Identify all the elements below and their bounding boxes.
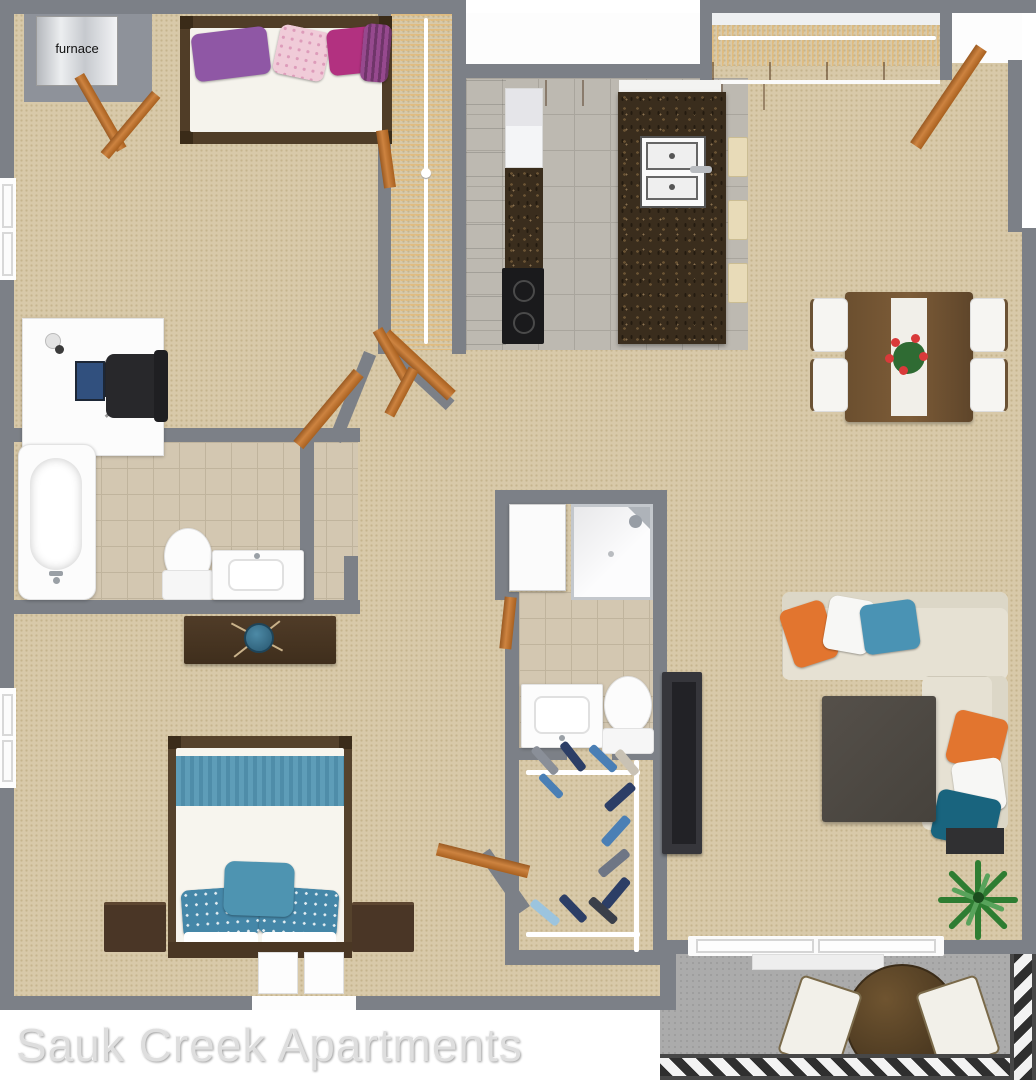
kitchen-upper-cabinet-left (545, 80, 619, 106)
window-bottom-sill (304, 952, 344, 994)
pillow-pink-pattern (271, 23, 332, 83)
bar-stool (728, 263, 748, 303)
sink-drain (669, 153, 675, 159)
shower-drain (608, 551, 614, 557)
watermark: Sauk Creek Apartments (16, 1018, 523, 1072)
patio-sliding-door (688, 936, 944, 956)
linen-closet (509, 504, 566, 591)
bed-master-blanket (176, 756, 344, 806)
window-left-top (0, 178, 16, 280)
window-left-master (0, 688, 16, 788)
window-bottom (252, 996, 356, 1010)
closet-top-rod (424, 18, 428, 344)
bed-top (180, 16, 392, 144)
window-sash (2, 694, 13, 736)
coat-closet-rod (718, 36, 936, 40)
centerpiece-flower (885, 354, 894, 363)
stove-burner (513, 280, 535, 302)
window-sash (2, 740, 13, 782)
patio-railing-bottom (660, 1054, 1036, 1080)
kitchen-island (618, 92, 726, 344)
kitchen-counter (505, 168, 543, 268)
sink-faucet (690, 166, 712, 173)
sofa-pillow-blue (859, 598, 921, 655)
bar-stool (728, 137, 748, 177)
plant-center (973, 892, 984, 903)
dining-chair (970, 358, 1008, 412)
shower-head (629, 515, 642, 528)
chair-back (154, 350, 168, 422)
pillow-purple (190, 26, 271, 83)
wall-entry-side (1008, 60, 1022, 232)
kitchen-cabinet-column (466, 80, 506, 346)
dining-table (845, 292, 973, 422)
stove-burner (513, 312, 535, 334)
dining-chair (810, 298, 848, 352)
window-sash (2, 184, 13, 228)
vanity-main-sink (228, 559, 284, 591)
shower (571, 504, 653, 600)
closet-bottom-rod (526, 932, 640, 937)
bar-stool (728, 200, 748, 240)
coat-closet-back (712, 13, 940, 25)
sliding-door-panel (818, 939, 936, 953)
sofa-side-table (946, 828, 1004, 854)
wall-kitchen-top (452, 64, 712, 78)
dining-chair (810, 358, 848, 412)
closet-top-rod-knob (421, 168, 431, 178)
wall-coat-closet-right (940, 0, 952, 80)
toilet-second-tank (602, 728, 654, 754)
dining-chair (970, 298, 1008, 352)
kitchen-upper-cabinet-right (721, 84, 805, 110)
office-chair (92, 350, 176, 426)
pillow-striped-purple (360, 23, 393, 83)
vanity-main (212, 550, 304, 600)
window-sash (2, 232, 13, 276)
toilet-main-tank (162, 570, 214, 600)
bathtub-drain (53, 577, 60, 584)
exterior-right-gap (1022, 13, 1036, 228)
furnace-label: furnace (37, 41, 117, 56)
window-bottom-sill (258, 952, 298, 994)
wall-hall-nub (344, 556, 358, 614)
vanity-second (521, 684, 603, 748)
centerpiece-flower (891, 338, 900, 347)
tv-console (662, 672, 702, 854)
vanity-second-faucet (559, 735, 565, 741)
nightstand-right (352, 902, 414, 952)
sliding-door-panel (696, 939, 814, 953)
bathtub-basin (30, 458, 82, 570)
sink-drain (669, 184, 675, 190)
tv-screen (672, 682, 696, 844)
kitchen-fridge (505, 88, 543, 168)
centerpiece-flower (919, 352, 928, 361)
wall-center-left-upper (495, 490, 509, 600)
plant (936, 858, 1020, 942)
wall-center-bottom (505, 950, 667, 965)
dresser-bowl (244, 623, 274, 653)
vanity-main-faucet (254, 553, 260, 559)
bathtub-faucet (49, 571, 63, 576)
coffee-table (822, 696, 936, 822)
bed-master (168, 736, 352, 958)
wall-bath-main-bottom (0, 600, 360, 614)
wall-center-top (495, 490, 667, 504)
wall-top-right (700, 0, 1036, 13)
wall-patio-joint (660, 940, 676, 1010)
wall-top-left (0, 0, 466, 14)
wall-right (1022, 228, 1036, 954)
bed-top-post (180, 131, 193, 144)
wall-left (0, 0, 14, 1010)
desk-lamp-head (55, 345, 64, 354)
dresser (184, 616, 336, 664)
kitchen-stove (502, 268, 544, 344)
window-band-top (466, 13, 700, 66)
toilet-second-bowl (604, 676, 652, 734)
bathtub (18, 444, 96, 600)
island-sink (640, 136, 706, 208)
coat-closet-bifold-doors (712, 62, 940, 80)
centerpiece-flower (899, 366, 908, 375)
nightstand-left (104, 902, 166, 952)
pillow-solid-blue (223, 861, 295, 917)
floor-plan: furnace (0, 0, 1036, 1080)
wall-coat-closet-left (700, 0, 712, 80)
closet-top-interior (391, 14, 452, 350)
centerpiece-flower (911, 334, 920, 343)
patio-railing-right (1010, 954, 1036, 1080)
vanity-second-sink (534, 696, 590, 734)
patio-threshold (752, 954, 884, 970)
